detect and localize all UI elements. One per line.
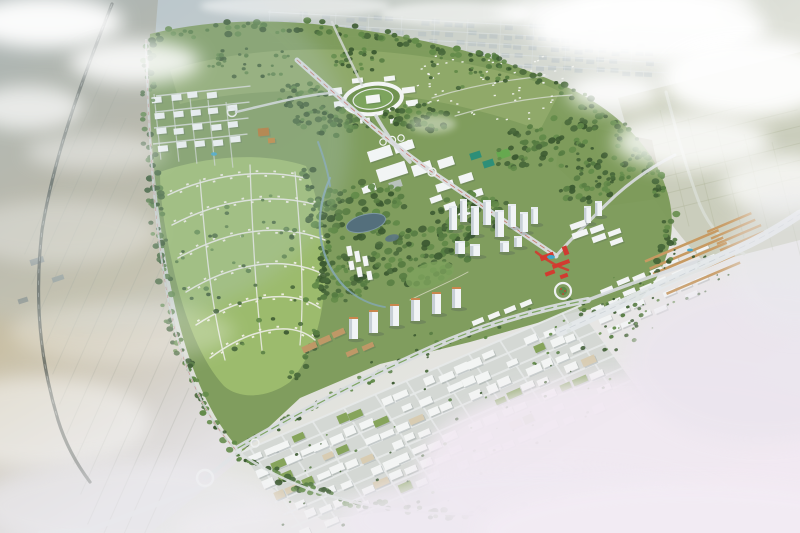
plaza-red-tree bbox=[564, 290, 566, 292]
aerial-masterplan-render bbox=[0, 0, 800, 533]
campus-center-building bbox=[366, 94, 381, 104]
haze-streak bbox=[10, 302, 234, 362]
plaza-red-tree bbox=[560, 288, 562, 290]
cloud bbox=[568, 74, 660, 110]
cloud bbox=[70, 40, 200, 84]
cloud-puff bbox=[408, 115, 456, 133]
cloud bbox=[26, 134, 166, 170]
plaza-pool bbox=[547, 255, 555, 259]
plaza-red-tree bbox=[562, 293, 564, 295]
render-canvas bbox=[0, 0, 800, 533]
pool bbox=[687, 249, 693, 252]
